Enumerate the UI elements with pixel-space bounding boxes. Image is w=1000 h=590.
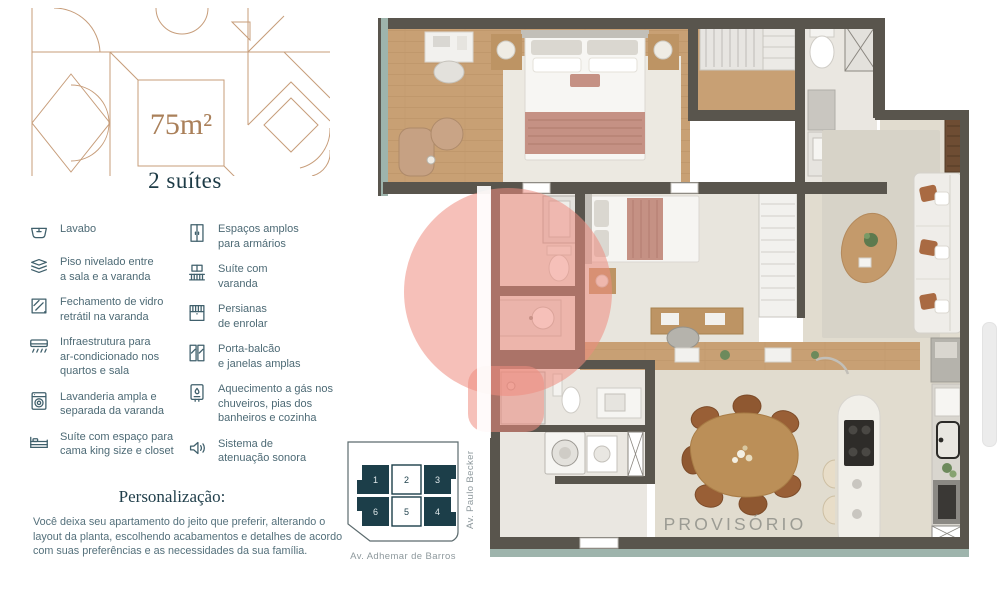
laundry-fixtures bbox=[545, 432, 617, 474]
wardrobe-icon bbox=[186, 222, 208, 244]
feature-item: Sistema de atenuação sonora bbox=[186, 437, 348, 466]
balcony-door-icon bbox=[186, 342, 208, 364]
glass-panel-icon bbox=[28, 295, 50, 317]
feature-item: Lavabo bbox=[28, 222, 186, 244]
personalization-paragraph: Você deixa seu apartamento do jeito que … bbox=[33, 515, 343, 559]
feature-item: Fechamento de vidro retrátil na varanda bbox=[28, 295, 186, 324]
dining-set bbox=[682, 395, 804, 515]
air-conditioner-icon bbox=[28, 335, 50, 357]
feature-item: Suíte com varanda bbox=[186, 262, 348, 291]
balcony-icon bbox=[186, 262, 208, 284]
closet-wardrobe bbox=[700, 25, 795, 70]
lavabo-fixtures bbox=[499, 300, 561, 336]
feature-list-column-1: Lavabo Piso nivelado entre a sala e a va… bbox=[28, 222, 186, 470]
kitchen-counter bbox=[931, 338, 962, 545]
feature-item: Infraestrutura para ar-condicionado nos … bbox=[28, 335, 186, 379]
decorative-line-art: 75m² bbox=[8, 8, 330, 176]
provisional-watermark-text: PROVISÓRIO bbox=[664, 513, 807, 534]
feature-item: Persianas de enrolar bbox=[186, 302, 348, 331]
sound-attenuation-icon bbox=[186, 437, 208, 459]
suites-count-label: 2 suítes bbox=[60, 168, 310, 194]
suite2-bed bbox=[585, 194, 699, 264]
feature-item: Suíte com espaço para cama king size e c… bbox=[28, 430, 186, 459]
suite1-nightstand-right bbox=[648, 34, 679, 70]
personalization-heading: Personalização: bbox=[22, 487, 322, 507]
balcony-glass-rail bbox=[490, 549, 969, 557]
suite1-bed bbox=[521, 30, 649, 160]
suite2-wardrobe bbox=[759, 192, 797, 317]
scrollbar-thumb[interactable] bbox=[982, 322, 997, 447]
bed-icon bbox=[28, 430, 50, 452]
feature-item: Porta-balcão e janelas amplas bbox=[186, 342, 348, 371]
feature-item: Espaços amplos para armários bbox=[186, 222, 348, 251]
floorplan-rendering: PROVISÓRIO bbox=[375, 8, 970, 560]
feature-item: Lavanderia ampla e separada da varanda bbox=[28, 390, 186, 419]
washing-machine-icon bbox=[28, 390, 50, 412]
suite1-nightstand-left bbox=[491, 34, 522, 70]
sofa bbox=[914, 173, 962, 333]
feature-list-column-2: Espaços amplos para armários Suíte com v… bbox=[186, 222, 348, 477]
gas-heater-icon bbox=[186, 382, 208, 404]
feature-item: Piso nivelado entre a sala e a varanda bbox=[28, 255, 186, 284]
floor-levels-icon bbox=[28, 255, 50, 277]
sink-icon bbox=[28, 222, 50, 244]
roller-blind-icon bbox=[186, 302, 208, 324]
feature-item: Aquecimento a gás nos chuveiros, pias do… bbox=[186, 382, 348, 426]
unit-area-label: 75m² bbox=[150, 108, 212, 141]
